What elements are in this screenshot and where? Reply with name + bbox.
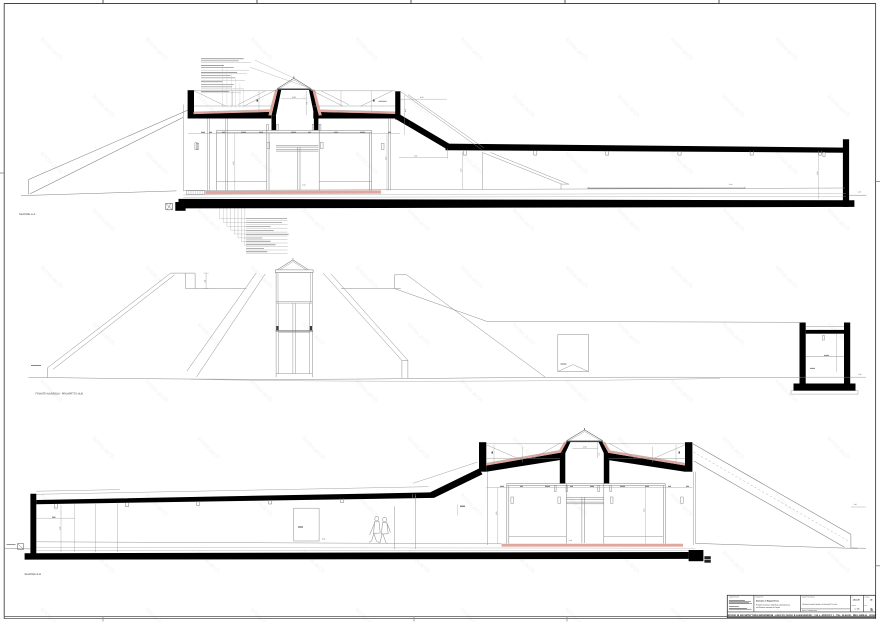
svg-text:4.70: 4.70 [58, 527, 61, 530]
svg-text:4.70: 4.70 [816, 172, 819, 175]
svg-text:0.00: 0.00 [302, 183, 305, 186]
svg-text:4.25: 4.25 [643, 509, 646, 512]
svg-text:2.5: 2.5 [306, 102, 309, 104]
svg-text:STUDIO DI ARCHITETTURA MANFRED: STUDIO DI ARCHITETTURA MANFREDINI : ADOL… [727, 614, 876, 617]
svg-text:COMMITTENTE: COMMITTENTE [729, 597, 739, 599]
svg-text:4.00: 4.00 [583, 446, 587, 449]
svg-text:4.00: 4.00 [292, 96, 296, 99]
svg-text:18.01.97: 18.01.97 [853, 598, 860, 601]
svg-text:1.05: 1.05 [858, 191, 861, 194]
svg-text:0.00: 0.00 [729, 183, 732, 186]
svg-text:0.00: 0.00 [569, 539, 572, 542]
svg-text:1.05: 1.05 [858, 373, 861, 376]
svg-text:SCALA: SCALA [852, 605, 856, 607]
svg-text:PROGETTO: PROGETTO [755, 597, 764, 599]
svg-text:4.70: 4.70 [232, 162, 235, 165]
svg-text:4.66: 4.66 [420, 96, 424, 99]
svg-text:4.70: 4.70 [460, 169, 463, 172]
svg-text:28: 28 [870, 598, 872, 601]
svg-text:4.70: 4.70 [495, 512, 498, 515]
svg-text:FRONTE INGRESSO - PROSPETTO: FRONTE INGRESSO - PROSPETTO SUD [36, 393, 84, 396]
svg-text:4.66: 4.66 [414, 154, 417, 157]
svg-text:TAVOLA: TAVOLA [865, 597, 870, 599]
svg-text:4.25: 4.25 [384, 157, 387, 160]
svg-text:SEZIONE A-A: SEZIONE A-A [19, 213, 36, 216]
svg-text:ARCH. A. MANFREDINI: ARCH. A. MANFREDINI [802, 610, 818, 612]
svg-text:SEZIONE B-B: SEZIONE B-B [25, 573, 42, 576]
svg-text:nel Giardino secolare di Canal: nel Giardino secolare di Canali [756, 606, 780, 609]
svg-text:Municipio di Reggio Emilia: Municipio di Reggio Emilia [756, 599, 780, 602]
svg-text:1 : 50: 1 : 50 [855, 607, 860, 610]
svg-text:OGGETTO TAVOLA: OGGETTO TAVOLA [802, 597, 815, 599]
